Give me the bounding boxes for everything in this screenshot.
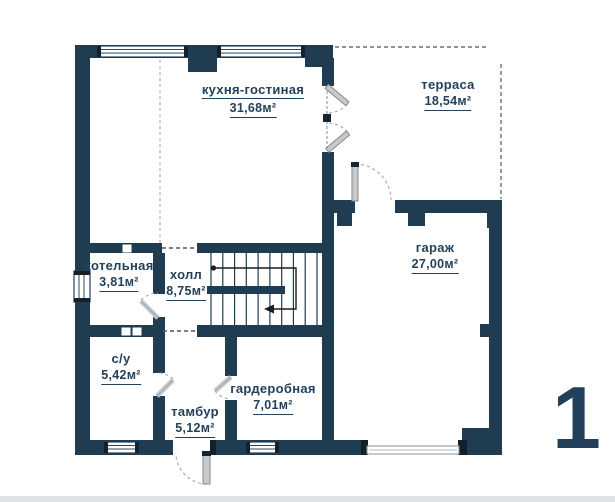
room-name: кухня-гостиная bbox=[202, 82, 304, 99]
garage-gate-symbol bbox=[367, 446, 459, 454]
room-name: терраса bbox=[421, 77, 474, 92]
door-leaf bbox=[203, 453, 210, 484]
door-meeting-post bbox=[323, 114, 331, 122]
wall bbox=[337, 213, 352, 226]
room-label-vestibule: тамбур 5,12м² bbox=[171, 404, 219, 438]
door-leaf bbox=[325, 84, 349, 105]
room-name: холл bbox=[170, 267, 202, 282]
vent bbox=[122, 328, 130, 335]
wall bbox=[489, 200, 502, 455]
room-area: 27,00м² bbox=[412, 257, 459, 274]
wall bbox=[197, 325, 334, 337]
entrance-door-symbol bbox=[176, 451, 211, 484]
wall bbox=[225, 337, 237, 376]
wall bbox=[395, 200, 489, 213]
room-area: 7,01м² bbox=[253, 398, 293, 415]
room-label-wardrobe: гардеробная 7,01м² bbox=[230, 381, 316, 415]
room-label-garage: гараж 27,00м² bbox=[412, 240, 459, 274]
french-door-symbol bbox=[323, 84, 350, 152]
door-swing-symbol bbox=[351, 162, 391, 201]
wall bbox=[322, 152, 334, 443]
room-name: тамбур bbox=[171, 404, 219, 419]
vent bbox=[133, 328, 141, 335]
room-name: гардеробная bbox=[230, 381, 316, 396]
wall bbox=[153, 253, 165, 294]
room-label-kitchen-living: кухня-гостиная 31,68м² bbox=[202, 82, 304, 118]
window-symbol bbox=[97, 46, 188, 57]
wall bbox=[153, 396, 165, 443]
door-swing-symbol bbox=[141, 293, 158, 318]
vent bbox=[123, 245, 131, 252]
room-label-hall: холл 8,75м² bbox=[166, 267, 206, 301]
door-hinge bbox=[202, 451, 211, 456]
wall-pilaster bbox=[480, 324, 489, 337]
floor-plan: кухня-гостиная 31,68м² терраса 18,54м² г… bbox=[0, 0, 615, 502]
room-name: гараж bbox=[416, 240, 455, 255]
window-symbol bbox=[217, 46, 305, 57]
room-area: 31,68м² bbox=[230, 101, 277, 118]
room-area: 5,12м² bbox=[175, 421, 215, 438]
room-area: 18,54м² bbox=[425, 94, 472, 111]
stair-landing-rail bbox=[207, 286, 285, 294]
wall bbox=[466, 441, 502, 455]
wall bbox=[153, 317, 165, 337]
window-symbol bbox=[104, 442, 139, 453]
room-label-bathroom: с/у 5,42м² bbox=[101, 351, 141, 385]
wall bbox=[408, 213, 425, 226]
page-edge-strip bbox=[0, 496, 615, 502]
window-symbol bbox=[246, 442, 279, 453]
floor-plan-drawing bbox=[0, 0, 615, 502]
room-area: 3,81м² bbox=[99, 275, 139, 292]
door-leaf bbox=[326, 131, 350, 152]
arrow-icon bbox=[264, 305, 274, 314]
room-area: 5,42м² bbox=[101, 368, 141, 385]
staircase bbox=[207, 253, 317, 325]
room-label-boiler: котельная 3,81м² bbox=[84, 258, 153, 292]
room-area: 8,75м² bbox=[166, 284, 206, 301]
room-name: с/у bbox=[112, 351, 131, 366]
door-swing-symbol bbox=[215, 377, 231, 399]
wall bbox=[334, 200, 355, 213]
floor-number: 1 bbox=[552, 374, 599, 462]
wall bbox=[197, 243, 334, 253]
door-hinge bbox=[351, 162, 359, 167]
room-label-terrace: терраса 18,54м² bbox=[421, 77, 474, 111]
wall bbox=[462, 428, 502, 441]
room-name: котельная bbox=[84, 258, 153, 273]
wall bbox=[188, 45, 217, 72]
door-swing-symbol bbox=[157, 373, 173, 396]
wall bbox=[75, 45, 90, 455]
wall bbox=[322, 58, 334, 86]
wall bbox=[153, 337, 165, 373]
door-leaf bbox=[352, 164, 358, 201]
